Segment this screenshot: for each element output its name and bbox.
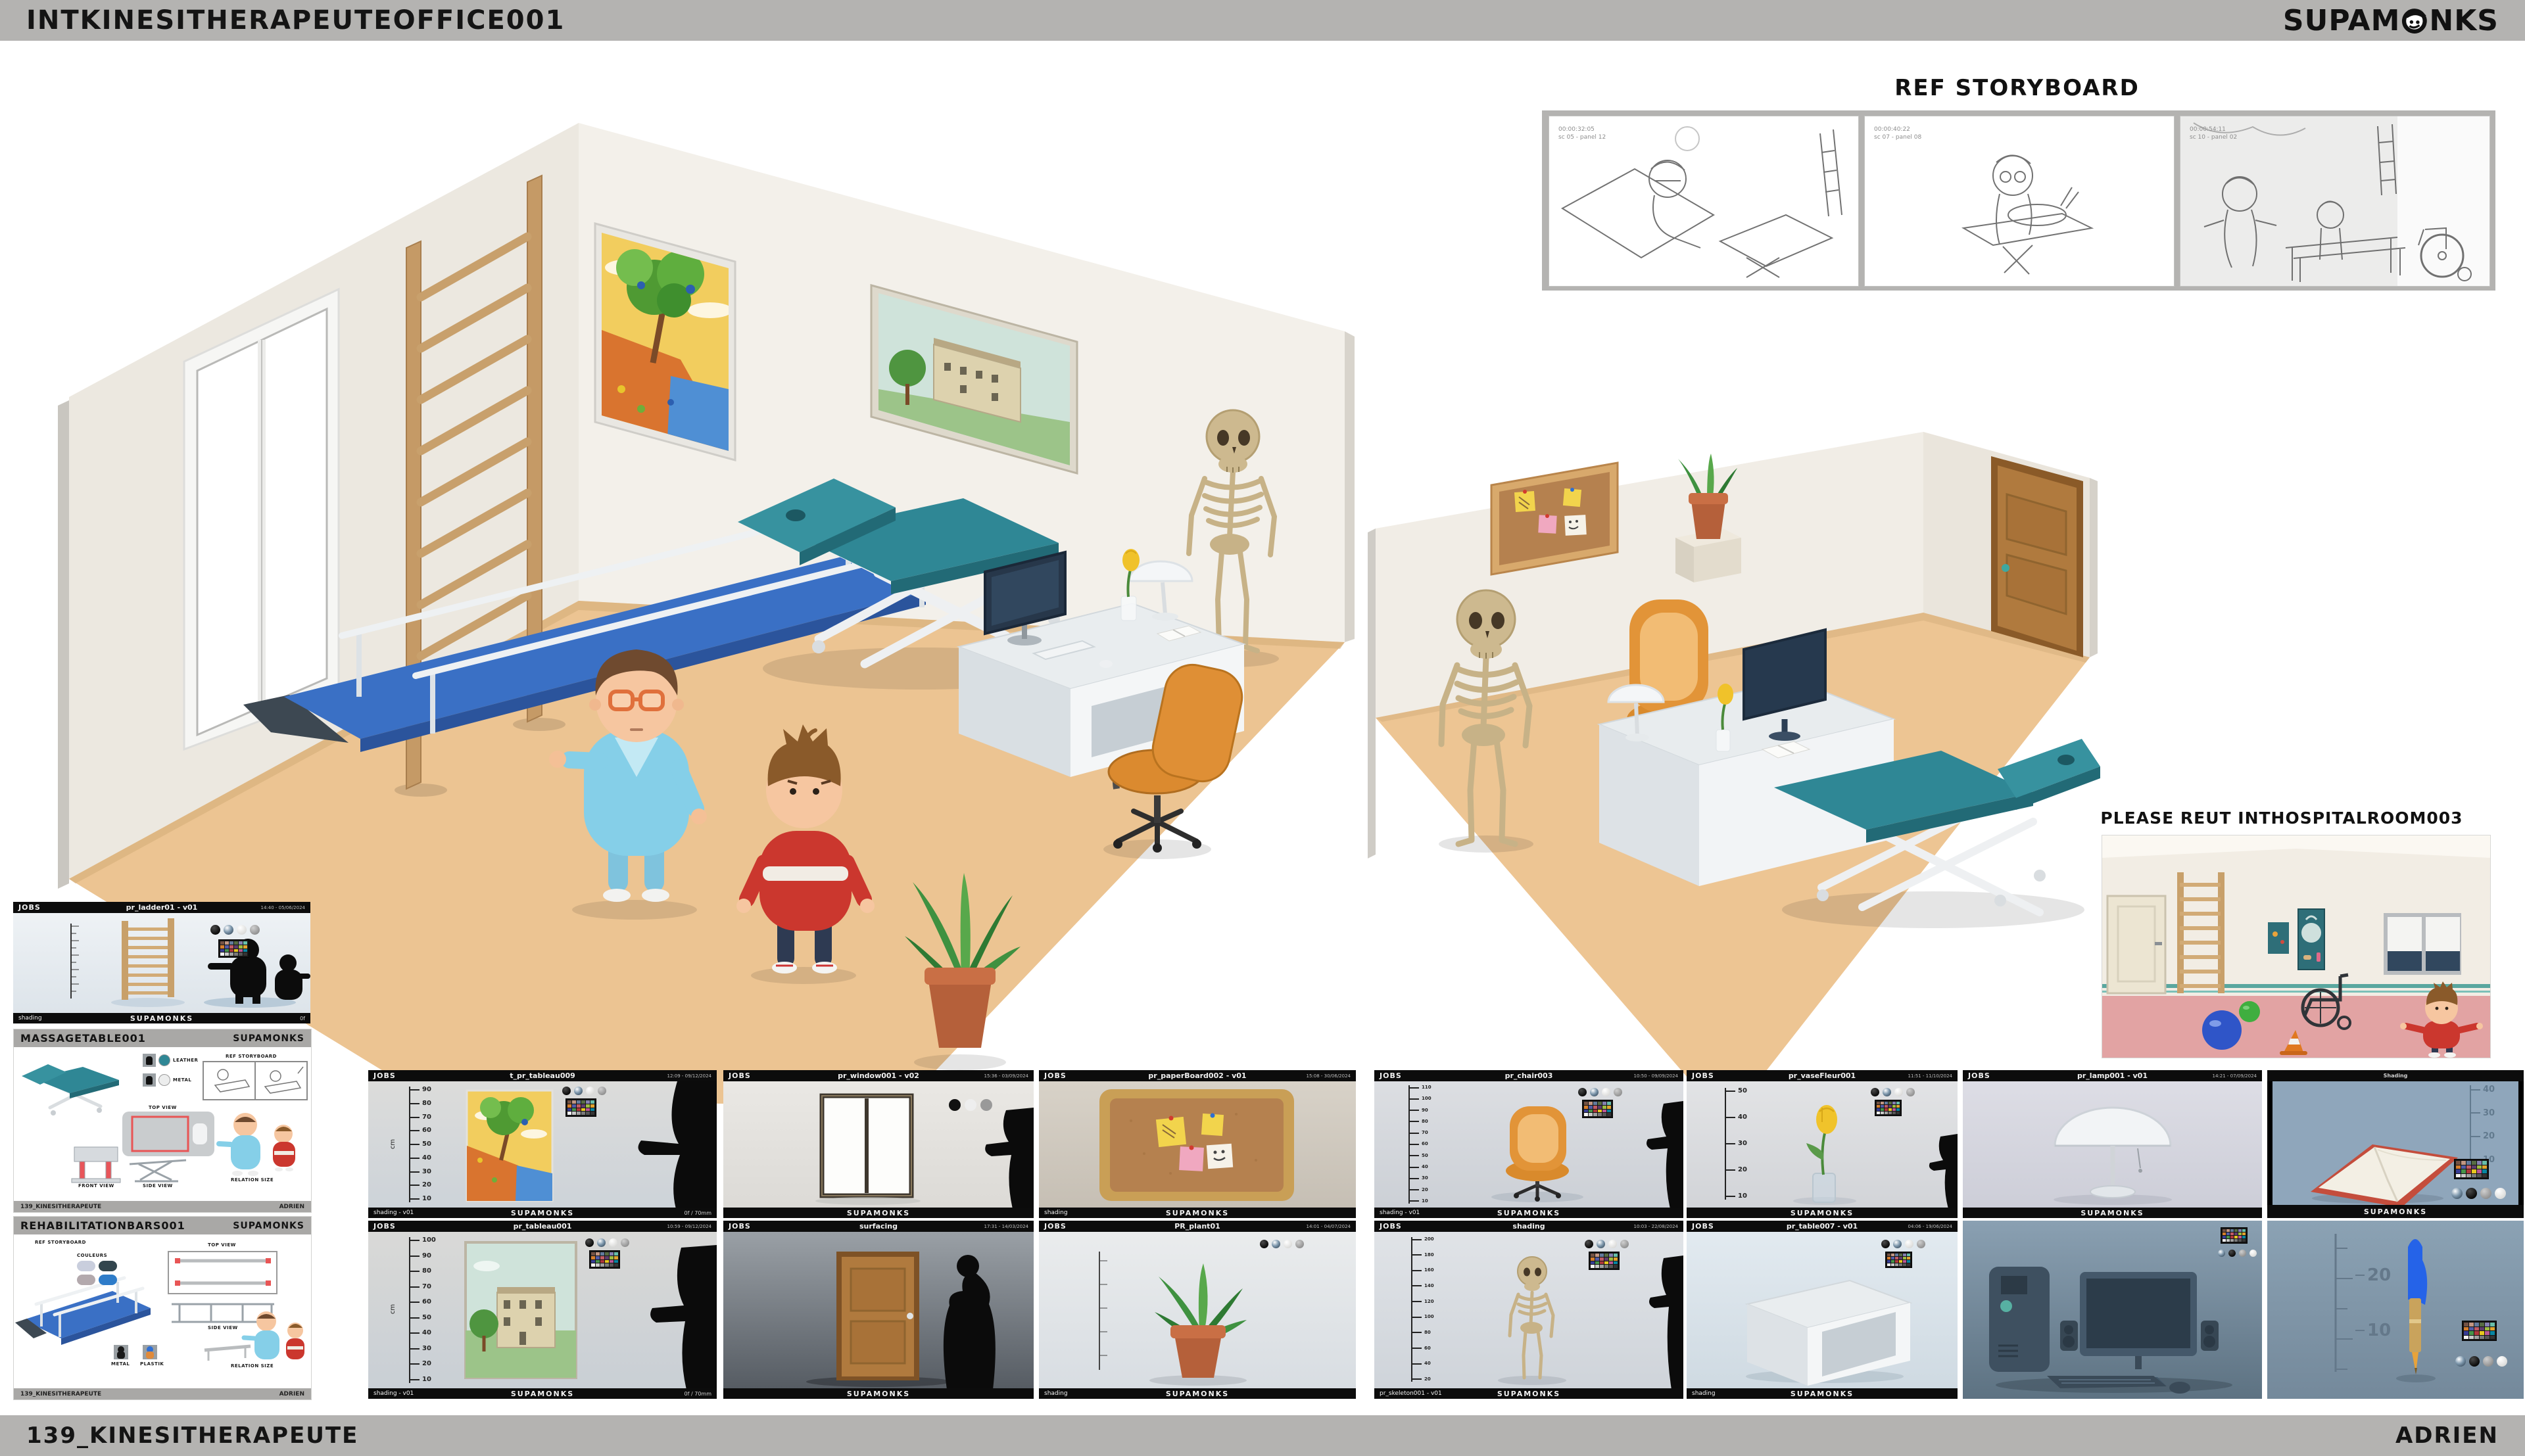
thumb-scene bbox=[1039, 1232, 1356, 1388]
asset-title: PR_plant01 bbox=[1174, 1222, 1220, 1231]
asset-thumb-pen: 2010 bbox=[2267, 1221, 2524, 1399]
thumb-header: JOBSt_pr_tableau00912:09 - 09/12/2024 bbox=[368, 1070, 717, 1081]
thumb-scene bbox=[1963, 1221, 2262, 1399]
rehab-sheet-art bbox=[14, 1234, 311, 1377]
asset-title: pr_window001 - v02 bbox=[838, 1071, 919, 1080]
thumb-scene bbox=[1039, 1081, 1356, 1208]
brand-label: SUPAMONKS bbox=[130, 1014, 193, 1023]
asset-thumb-plant: JOBSPR_plant0114:01 - 04/07/2024 shading… bbox=[1039, 1221, 1356, 1399]
storyboard-frame-meta: 00:00:54:11 sc 10 - panel 02 bbox=[2190, 126, 2237, 141]
brand-label: SUPAMONKS bbox=[847, 1209, 910, 1217]
sheet-body: LEATHER METAL TOP VIEW FRONT VIEW SIDE V… bbox=[14, 1047, 311, 1201]
relation-size-label: RELATION SIZE bbox=[231, 1177, 274, 1183]
color-checker bbox=[2454, 1159, 2489, 1179]
logo-text-left: SUPAM bbox=[2283, 4, 2400, 37]
top-view-label: TOP VIEW bbox=[208, 1242, 236, 1248]
material-label: LEATHER bbox=[173, 1058, 198, 1063]
jobs-label: JOBS bbox=[18, 903, 41, 912]
hospital-room-scene bbox=[2102, 835, 2490, 1058]
bottom-bar: 139_KINESITHERAPEUTE ADRIEN bbox=[0, 1415, 2525, 1456]
frame-label: 0f bbox=[300, 1016, 305, 1022]
ref-storyboard-label: REF STORYBOARD bbox=[226, 1054, 277, 1059]
window-scene bbox=[723, 1081, 1034, 1208]
thumb-scene: 908070605040302010 cm bbox=[368, 1081, 717, 1208]
timecode: 00:00:40:22 bbox=[1874, 126, 1921, 133]
door-handle bbox=[2002, 564, 2009, 572]
asset-thumb-book: Shading 40302010 SUPAMONKS bbox=[2267, 1070, 2524, 1218]
thumb-footer: SUPAMONKS bbox=[723, 1388, 1034, 1399]
sheet-title: MASSAGETABLE001 bbox=[20, 1032, 146, 1045]
swatch-3 bbox=[77, 1275, 95, 1285]
asset-title: pr_vaseFleur001 bbox=[1789, 1071, 1856, 1080]
thumb-footer: shading - v01SUPAMONKS0f / 70mm bbox=[368, 1388, 717, 1399]
thumb-footer: SUPAMONKS bbox=[723, 1208, 1034, 1218]
material-ball-icon bbox=[143, 1073, 156, 1087]
front-view bbox=[72, 1147, 120, 1183]
storyboard-sketch-2 bbox=[1865, 116, 2174, 286]
cm-ruler: 5040302010 bbox=[1725, 1088, 1747, 1200]
timestamp: 10:59 - 09/12/2024 bbox=[667, 1224, 712, 1229]
character-silhouette bbox=[944, 1271, 996, 1388]
jobs-label: JOBS bbox=[373, 1071, 396, 1080]
asset-thumb-tableau009: JOBSt_pr_tableau00912:09 - 09/12/2024 90… bbox=[368, 1070, 717, 1218]
window bbox=[184, 289, 339, 749]
lighting-spheres bbox=[1881, 1240, 1925, 1248]
pass-label: shading - v01 bbox=[373, 1209, 414, 1216]
color-checker bbox=[1582, 1100, 1613, 1118]
timestamp: 14:01 - 04/07/2024 bbox=[1307, 1224, 1351, 1229]
board-title: INTKINESITHERAPEUTEOFFICE001 bbox=[26, 5, 565, 35]
couleurs-swatches bbox=[77, 1261, 117, 1285]
swatch-2 bbox=[99, 1261, 117, 1271]
asset-sheet-ladder: JOBS pr_ladder01 - v01 14:40 - 05/06/202… bbox=[13, 902, 310, 1023]
logo-text-right: NKS bbox=[2429, 4, 2499, 37]
iso-table bbox=[22, 1064, 119, 1115]
green-ball bbox=[2239, 1001, 2260, 1022]
reuse-note-title: PLEASE REUT INTHOSPITALROOM003 bbox=[2071, 809, 2492, 828]
lamp-scene bbox=[1963, 1081, 2262, 1208]
ruler-unit: cm bbox=[389, 1139, 397, 1149]
storyboard-frame-meta: 00:00:40:22 sc 07 - panel 08 bbox=[1874, 126, 1921, 141]
blue-ball bbox=[2202, 1010, 2242, 1050]
thumb-footer: shading - v01SUPAMONKS bbox=[1374, 1208, 1683, 1218]
asset-thumb-tableau001: JOBSpr_tableau00110:59 - 09/12/2024 1009… bbox=[368, 1221, 717, 1399]
asset-title: pr_lamp001 - v01 bbox=[2077, 1071, 2148, 1080]
jobs-label: JOBS bbox=[729, 1222, 751, 1231]
character-silhouette bbox=[650, 1245, 717, 1388]
asset-thumb-paperboard: JOBSpr_paperBoard002 - v0115:08 - 30/06/… bbox=[1039, 1070, 1356, 1218]
brand-label: SUPAMONKS bbox=[1166, 1209, 1229, 1217]
thumb-scene bbox=[1963, 1081, 2262, 1208]
plant-scene bbox=[1039, 1232, 1356, 1388]
storyboard-frame-meta: 00:00:32:05 sc 05 - panel 12 bbox=[1558, 126, 1606, 141]
brand-label: SUPAMONKS bbox=[1497, 1390, 1560, 1398]
cm-ruler: 20018016014012010080604020 bbox=[1411, 1237, 1434, 1382]
thumb-scene: 110100908070605040302010 bbox=[1374, 1081, 1683, 1208]
brand-label: SUPAMONKS bbox=[233, 1033, 304, 1044]
thumb-header: JOBSshading10:03 - 22/08/2024 bbox=[1374, 1221, 1683, 1232]
front-view-label: FRONT VIEW bbox=[78, 1183, 114, 1188]
asset-title: pr_table007 - v01 bbox=[1787, 1222, 1858, 1231]
jobs-label: JOBS bbox=[1380, 1222, 1402, 1231]
leather-swatch bbox=[158, 1054, 170, 1066]
swatch-4 bbox=[99, 1275, 117, 1285]
thumb-scene: 2010 bbox=[2267, 1221, 2524, 1399]
pass-label: shading bbox=[18, 1015, 42, 1022]
brand-label: SUPAMONKS bbox=[1497, 1209, 1560, 1217]
plastik-label: PLASTIK bbox=[140, 1361, 164, 1367]
thumb-header: JOBSsurfacing17:31 - 14/03/2024 bbox=[723, 1221, 1034, 1232]
color-checker bbox=[1589, 1252, 1620, 1270]
timestamp: 14:21 - 07/09/2024 bbox=[2213, 1073, 2257, 1079]
cm-ruler: 908070605040302010 bbox=[409, 1087, 431, 1202]
material-label: METAL bbox=[173, 1077, 191, 1083]
jobs-label: JOBS bbox=[1968, 1071, 1990, 1080]
side-view bbox=[130, 1160, 186, 1181]
right-room-render bbox=[1368, 415, 2104, 1125]
thumb-scene: 40302010 bbox=[2272, 1081, 2518, 1205]
window bbox=[2384, 913, 2461, 975]
door bbox=[2107, 896, 2165, 993]
storyboard-sketch-3 bbox=[2180, 116, 2489, 286]
ruler-unit: cm bbox=[389, 1304, 397, 1314]
relation-bench bbox=[204, 1346, 251, 1361]
thumb-footer: pr_skeleton001 - v01SUPAMONKS bbox=[1374, 1388, 1683, 1399]
brand-label: SUPAMONKS bbox=[233, 1221, 304, 1231]
mouse bbox=[1099, 660, 1113, 668]
pass-label: shading - v01 bbox=[1380, 1209, 1420, 1216]
color-checker bbox=[218, 939, 249, 958]
pass-label: shading - v01 bbox=[373, 1390, 414, 1397]
timestamp: 11:51 - 11/10/2024 bbox=[1908, 1073, 1953, 1079]
massage-sheet-art bbox=[14, 1047, 311, 1190]
tall-poster bbox=[2298, 909, 2324, 970]
top-bar: INTKINESITHERAPEUTEOFFICE001 SUPAM NKS bbox=[0, 0, 2525, 41]
color-checker bbox=[1875, 1100, 1902, 1116]
jobs-label: JOBS bbox=[373, 1222, 396, 1231]
character-silhouette bbox=[985, 1108, 1034, 1208]
jobs-label: JOBS bbox=[1380, 1071, 1402, 1080]
asset-title: pr_tableau001 bbox=[514, 1222, 572, 1231]
door-scene bbox=[723, 1232, 1034, 1388]
character-silhouette bbox=[1929, 1134, 1958, 1208]
small-poster bbox=[2268, 922, 2289, 954]
thumb-header: JOBSpr_vaseFleur00111:51 - 11/10/2024 bbox=[1687, 1070, 1958, 1081]
jobs-label: JOBS bbox=[1044, 1071, 1067, 1080]
project-name: 139_KINESITHERAPEUTE bbox=[26, 1422, 358, 1449]
thumb-footer: SUPAMONKS bbox=[1963, 1208, 2262, 1218]
project-label: 139_KINESITHERAPEUTE bbox=[20, 1204, 101, 1210]
asset-title: surfacing bbox=[859, 1222, 898, 1231]
brand-label: SUPAMONKS bbox=[1166, 1390, 1229, 1398]
asset-title: pr_ladder01 - v01 bbox=[126, 903, 198, 912]
timecode: 00:00:54:11 bbox=[2190, 126, 2237, 133]
thumb-footer: shadingSUPAMONKS bbox=[1687, 1388, 1958, 1399]
jobs-label: JOBS bbox=[1044, 1222, 1067, 1231]
asset-thumb-chair: JOBSpr_chair00310:50 - 09/09/2024 110100… bbox=[1374, 1070, 1683, 1218]
jobs-label: JOBS bbox=[1692, 1071, 1714, 1080]
timestamp: 15:08 - 30/06/2024 bbox=[1307, 1073, 1351, 1079]
thumb-scene bbox=[1687, 1232, 1958, 1388]
character-silhouette bbox=[1649, 1256, 1683, 1388]
pass-label: shading bbox=[1692, 1390, 1716, 1397]
ref-storyboard-label-2: REF STORYBOARD bbox=[35, 1240, 86, 1245]
frame-label: 0f / 70mm bbox=[685, 1210, 711, 1216]
sheet-header: REHABILITATIONBARS001 SUPAMONKS bbox=[14, 1217, 311, 1234]
asset-thumb-vase-fleur: JOBSpr_vaseFleur00111:51 - 11/10/2024 50… bbox=[1687, 1070, 1958, 1218]
asset-thumb-table: JOBSpr_table007 - v0104:06 - 19/06/2024 … bbox=[1687, 1221, 1958, 1399]
timestamp: 10:03 - 22/08/2024 bbox=[1634, 1224, 1679, 1229]
storyboard-frame-2: 00:00:40:22 sc 07 - panel 08 bbox=[1864, 116, 2175, 287]
asset-thumb-lamp: JOBSpr_lamp001 - v0114:21 - 07/09/2024 S… bbox=[1963, 1070, 2262, 1218]
relation-size-label: RELATION SIZE bbox=[231, 1363, 274, 1369]
asset-sheet-rehabilitation-bars: REHABILITATIONBARS001 SUPAMONKS bbox=[13, 1216, 312, 1400]
sheet-scene bbox=[13, 913, 310, 1013]
thumb-header: JOBSpr_table007 - v0104:06 - 19/06/2024 bbox=[1687, 1221, 1958, 1232]
color-checker bbox=[565, 1098, 596, 1117]
side-view-label: SIDE VIEW bbox=[143, 1183, 173, 1188]
lighting-spheres bbox=[2455, 1356, 2507, 1367]
asset-title: shading bbox=[1512, 1222, 1545, 1231]
storyboard-frame-1: 00:00:32:05 sc 05 - panel 12 bbox=[1549, 116, 1859, 287]
thumb-header: JOBSpr_paperBoard002 - v0115:08 - 30/06/… bbox=[1039, 1070, 1356, 1081]
tree-painting bbox=[595, 223, 735, 460]
side-view-label: SIDE VIEW bbox=[208, 1325, 238, 1330]
brand-label: SUPAMONKS bbox=[2364, 1208, 2427, 1216]
material-chip-metal: METAL bbox=[143, 1073, 191, 1087]
top-view-label: TOP VIEW bbox=[149, 1105, 177, 1110]
board-canvas: REF STORYBOARD 00:00:32:05 bbox=[0, 41, 2525, 1415]
brand-label: SUPAMONKS bbox=[1791, 1390, 1854, 1398]
sheet-body: TOP VIEW SIDE VIEW METAL PLASTIK REF STO… bbox=[14, 1234, 311, 1388]
thumb-footer: SUPAMONKS bbox=[2267, 1205, 2524, 1218]
asset-title: pr_paperBoard002 - v01 bbox=[1148, 1071, 1246, 1080]
timestamp: 15:36 - 03/09/2024 bbox=[984, 1073, 1029, 1079]
relation-size-figures bbox=[219, 1113, 295, 1176]
thumb-scene: 20018016014012010080604020 bbox=[1374, 1232, 1683, 1388]
pen-scene bbox=[2267, 1221, 2524, 1399]
cm-ruler: 2010 bbox=[2355, 1267, 2391, 1339]
paperboard-scene bbox=[1039, 1081, 1356, 1208]
thumb-header: JOBSPR_plant0114:01 - 04/07/2024 bbox=[1039, 1221, 1356, 1232]
color-checker bbox=[2462, 1321, 2497, 1341]
timecode: 00:00:32:05 bbox=[1558, 126, 1606, 133]
thumb-scene: 5040302010 bbox=[1687, 1081, 1958, 1208]
timestamp: 17:31 - 14/03/2024 bbox=[984, 1224, 1029, 1229]
author-label: ADRIEN bbox=[279, 1204, 304, 1210]
lighting-spheres bbox=[210, 925, 260, 935]
panel-ref: sc 05 - panel 12 bbox=[1558, 133, 1606, 141]
author-label: ADRIEN bbox=[279, 1391, 304, 1397]
thumb-header: JOBSpr_tableau00110:59 - 09/12/2024 bbox=[368, 1221, 717, 1232]
asset-title: pr_chair003 bbox=[1505, 1071, 1553, 1080]
cm-ruler: 40302010 bbox=[2470, 1085, 2495, 1164]
material-chips-art bbox=[114, 1345, 157, 1359]
lighting-spheres bbox=[562, 1087, 606, 1095]
painting bbox=[467, 1091, 552, 1201]
color-checker bbox=[589, 1250, 620, 1269]
pass-label: shading bbox=[1044, 1209, 1068, 1216]
sheet-title: REHABILITATIONBARS001 bbox=[20, 1219, 185, 1232]
brand-label: SUPAMONKS bbox=[511, 1209, 574, 1217]
thumb-footer: shadingSUPAMONKS bbox=[1039, 1388, 1356, 1399]
brand-label: SUPAMONKS bbox=[511, 1390, 574, 1398]
top-view-box bbox=[168, 1252, 277, 1294]
color-checker bbox=[2221, 1227, 2248, 1244]
character-silhouette bbox=[1647, 1101, 1683, 1208]
material-chip-leather: LEATHER bbox=[143, 1054, 198, 1067]
hospital-room-render bbox=[2102, 835, 2491, 1058]
supamonks-logo: SUPAM NKS bbox=[2283, 4, 2499, 37]
sheet-footer: 139_KINESITHERAPEUTE ADRIEN bbox=[14, 1388, 311, 1399]
panel-ref: sc 10 - panel 02 bbox=[2190, 133, 2237, 141]
cm-ruler: 110100908070605040302010 bbox=[1408, 1085, 1431, 1204]
thumb-header: JOBSpr_chair00310:50 - 09/09/2024 bbox=[1374, 1070, 1683, 1081]
metal-label: METAL bbox=[111, 1361, 130, 1367]
top-view bbox=[122, 1112, 214, 1156]
frame-label: 0f / 70mm bbox=[685, 1391, 711, 1397]
sheet-footer: 139_KINESITHERAPEUTE ADRIEN bbox=[14, 1201, 311, 1212]
asset-thumb-window: JOBSpr_window001 - v0215:36 - 03/09/2024… bbox=[723, 1070, 1034, 1218]
couleurs-label: COULEURS bbox=[77, 1253, 107, 1258]
lighting-spheres bbox=[1578, 1088, 1622, 1096]
lighting-spheres bbox=[585, 1238, 629, 1247]
relation-size-figures bbox=[244, 1311, 304, 1359]
author-name: ADRIEN bbox=[2395, 1422, 2499, 1449]
project-label: 139_KINESITHERAPEUTE bbox=[20, 1391, 101, 1397]
timestamp: 10:50 - 09/09/2024 bbox=[1634, 1073, 1679, 1079]
lighting-spheres bbox=[1871, 1088, 1915, 1096]
thumb-header: JOBSpr_lamp001 - v0114:21 - 07/09/2024 bbox=[1963, 1070, 2262, 1081]
sheet-header: JOBS pr_ladder01 - v01 14:40 - 05/06/202… bbox=[13, 902, 310, 913]
metal-swatch bbox=[158, 1074, 170, 1086]
lighting-spheres bbox=[1260, 1240, 1304, 1248]
ladder-scene bbox=[13, 913, 310, 1013]
ref-storyboard-box bbox=[203, 1062, 307, 1100]
thumb-footer: shadingSUPAMONKS bbox=[1039, 1208, 1356, 1218]
material-ball-icon bbox=[143, 1054, 156, 1067]
sheet-footer: shading SUPAMONKS 0f bbox=[13, 1013, 310, 1023]
asset-thumb-skeleton: JOBSshading10:03 - 22/08/2024 2001801601… bbox=[1374, 1221, 1683, 1399]
lighting-spheres bbox=[1585, 1240, 1629, 1248]
lighting-spheres bbox=[2218, 1250, 2257, 1257]
timestamp: 12:09 - 09/12/2024 bbox=[667, 1073, 712, 1079]
asset-sheet-massage-table: MASSAGETABLE001 SUPAMONKS bbox=[13, 1029, 312, 1213]
brand-label: SUPAMONKS bbox=[2080, 1209, 2144, 1217]
panel-ref: sc 07 - panel 08 bbox=[1874, 133, 1921, 141]
storyboard-title: REF STORYBOARD bbox=[1539, 75, 2495, 101]
computer-scene bbox=[1963, 1221, 2262, 1399]
wooden-door bbox=[1991, 456, 2083, 657]
timestamp: 14:40 - 05/06/2024 bbox=[261, 905, 306, 910]
jobs-label: JOBS bbox=[729, 1071, 751, 1080]
thumb-header: Shading bbox=[2267, 1070, 2524, 1081]
asset-thumb-computer bbox=[1963, 1221, 2262, 1399]
sheet-header: MASSAGETABLE001 SUPAMONKS bbox=[14, 1029, 311, 1047]
storyboard-frame-3: 00:00:54:11 sc 10 - panel 02 bbox=[2180, 116, 2490, 287]
thumb-scene: 100908070605040302010 cm bbox=[368, 1232, 717, 1388]
character-silhouette bbox=[638, 1081, 717, 1208]
thumb-scene bbox=[723, 1081, 1034, 1208]
brand-label: SUPAMONKS bbox=[1791, 1209, 1854, 1217]
monk-head-icon bbox=[2399, 5, 2430, 35]
jobs-label: JOBS bbox=[1692, 1222, 1714, 1231]
lighting-spheres bbox=[2451, 1188, 2506, 1199]
cm-ruler: 100908070605040302010 bbox=[409, 1237, 436, 1383]
storyboard-sketch-1 bbox=[1549, 116, 1858, 286]
thumb-scene bbox=[723, 1232, 1034, 1388]
pass-label: shading bbox=[1044, 1390, 1068, 1397]
timestamp: 04:06 - 19/06/2024 bbox=[1908, 1224, 1953, 1229]
iso-bars bbox=[15, 1278, 151, 1345]
table-scene bbox=[1687, 1232, 1958, 1388]
thumb-footer: shading - v01SUPAMONKS0f / 70mm bbox=[368, 1208, 717, 1218]
thumb-header: JOBSpr_window001 - v0215:36 - 03/09/2024 bbox=[723, 1070, 1034, 1081]
asset-thumb-door: JOBSsurfacing17:31 - 14/03/2024 SUPAMONK… bbox=[723, 1221, 1034, 1399]
storyboard-band: 00:00:32:05 sc 05 - panel 12 00:00:40:22 bbox=[1542, 110, 2495, 291]
pass-label: pr_skeleton001 - v01 bbox=[1380, 1390, 1442, 1397]
thumb-footer: SUPAMONKS bbox=[1687, 1208, 1958, 1218]
asset-title: t_pr_tableau009 bbox=[510, 1071, 575, 1080]
asset-title: Shading bbox=[2384, 1073, 2408, 1079]
color-checker bbox=[1885, 1252, 1912, 1268]
brand-label: SUPAMONKS bbox=[847, 1390, 910, 1398]
painting bbox=[466, 1242, 576, 1378]
swatch-1 bbox=[77, 1261, 95, 1271]
